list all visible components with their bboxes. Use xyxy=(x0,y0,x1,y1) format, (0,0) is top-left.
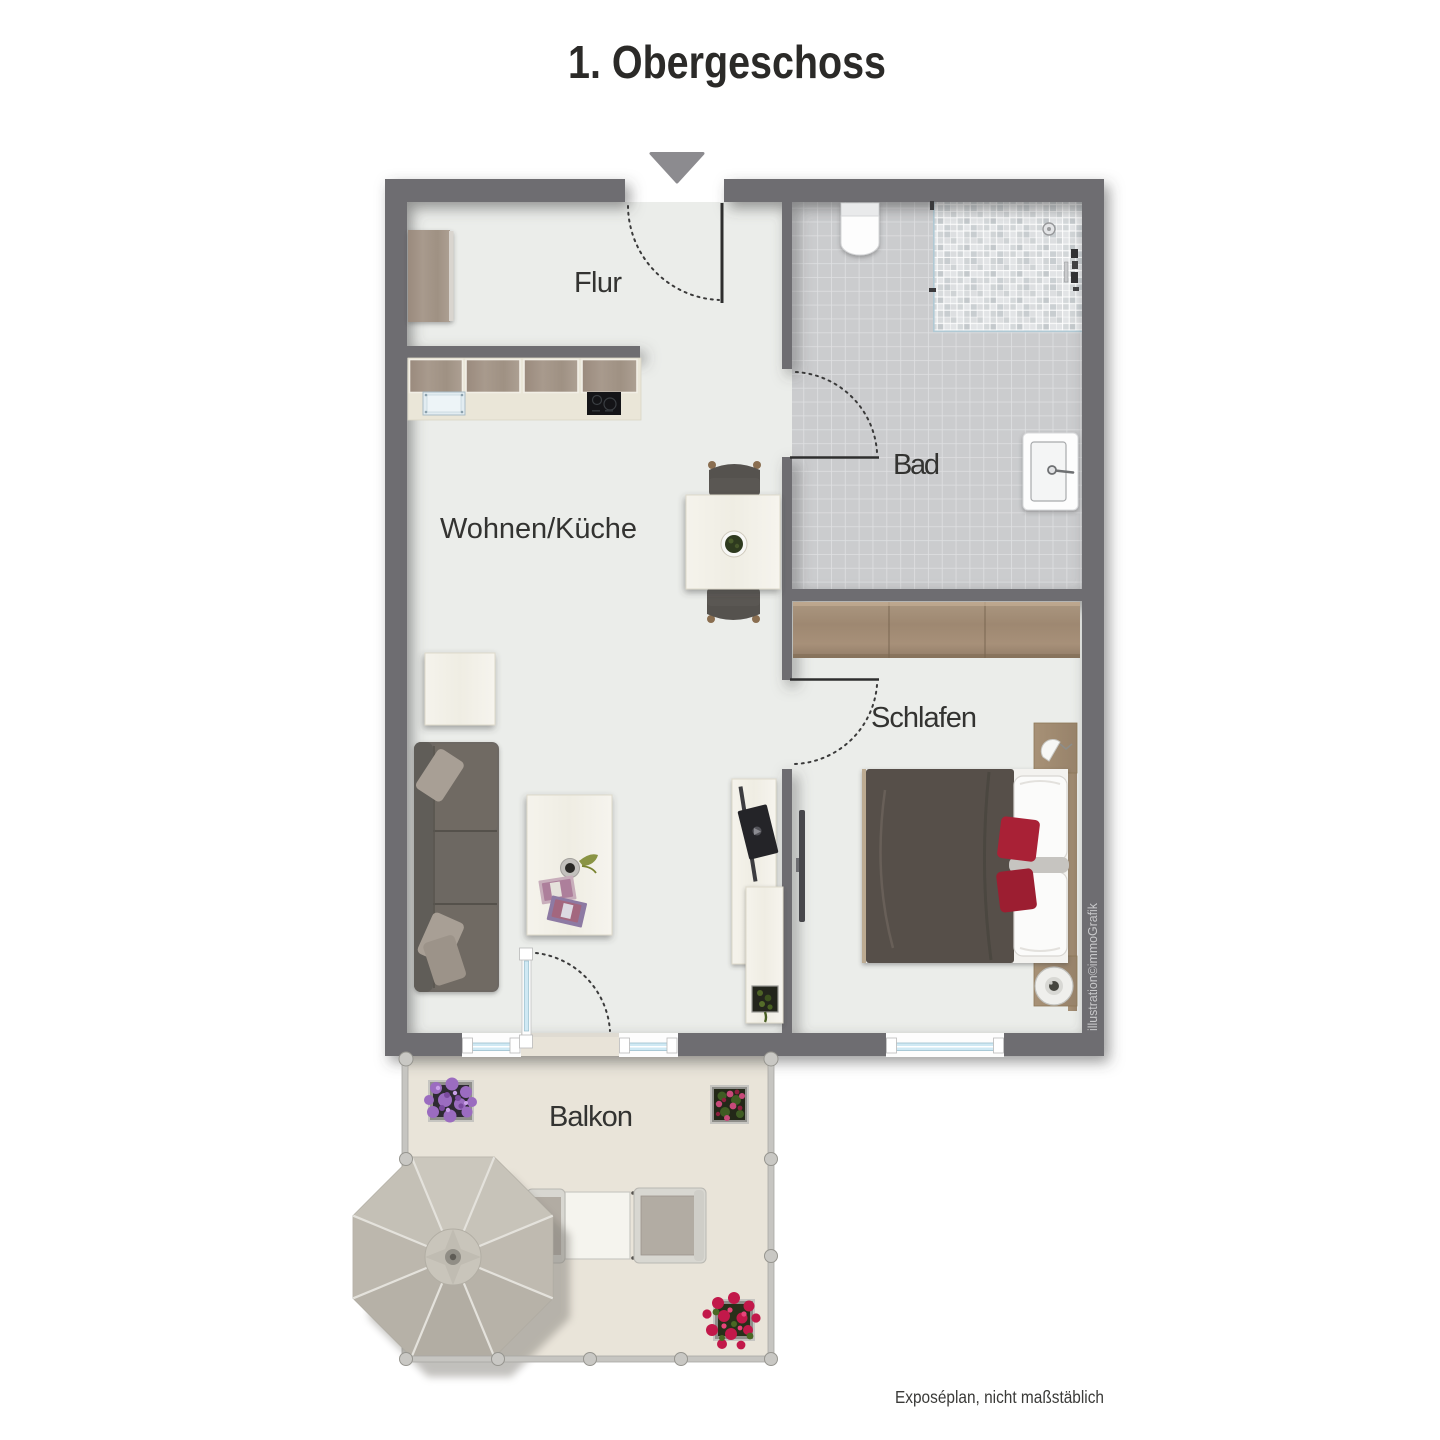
svg-text:Bad: Bad xyxy=(893,449,940,481)
svg-text:1. Obergeschoss: 1. Obergeschoss xyxy=(568,36,886,88)
svg-text:Flur: Flur xyxy=(574,267,622,299)
svg-text:Balkon: Balkon xyxy=(549,1101,633,1133)
svg-text:Wohnen/Küche: Wohnen/Küche xyxy=(440,513,637,545)
svg-text:Exposéplan, nicht maßstäblich: Exposéplan, nicht maßstäblich xyxy=(895,1387,1104,1407)
svg-text:Schlafen: Schlafen xyxy=(871,702,977,734)
svg-text:illustration©immoGrafik: illustration©immoGrafik xyxy=(1086,902,1100,1031)
